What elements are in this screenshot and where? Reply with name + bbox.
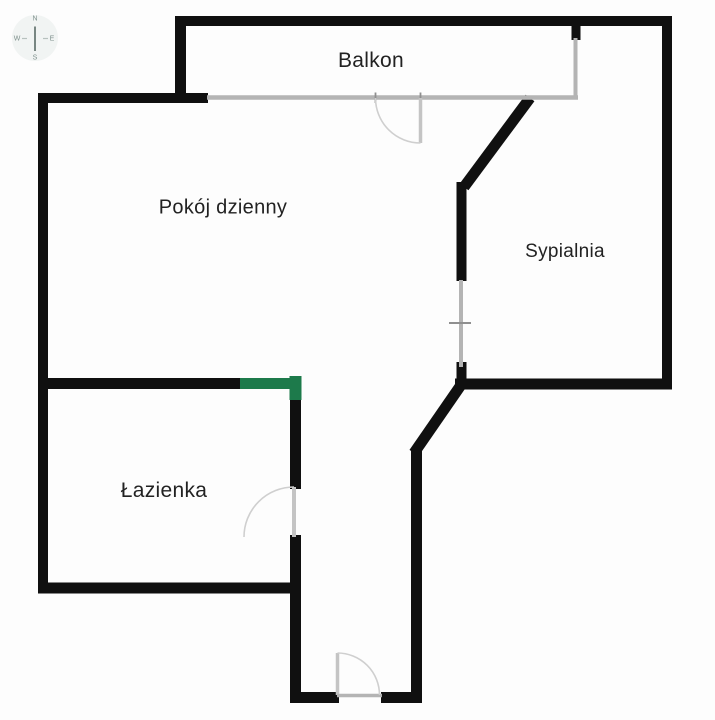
floor-plan: N S W E Balkon Pokój dzienny Sypialnia Ł… <box>0 0 715 720</box>
bathroom-door-swing-arc <box>244 487 294 537</box>
hall-diagonal-wall <box>414 385 461 453</box>
compass-south-label: S <box>33 55 38 62</box>
room-label-bedroom: Sypialnia <box>525 241 605 263</box>
compass-west-label: W <box>14 36 21 43</box>
balcony-door-swing-arc <box>376 98 421 143</box>
compass-east-label: E <box>50 36 55 43</box>
floor-plan-drawing <box>0 0 715 720</box>
compass-north-label: N <box>32 16 37 23</box>
room-label-bathroom: Łazienka <box>121 479 207 503</box>
entry-door-swing-arc <box>338 653 380 695</box>
room-label-living-room: Pokój dzienny <box>159 197 287 220</box>
room-label-balcony: Balkon <box>338 49 404 73</box>
bedroom-diagonal-wall <box>464 98 530 187</box>
